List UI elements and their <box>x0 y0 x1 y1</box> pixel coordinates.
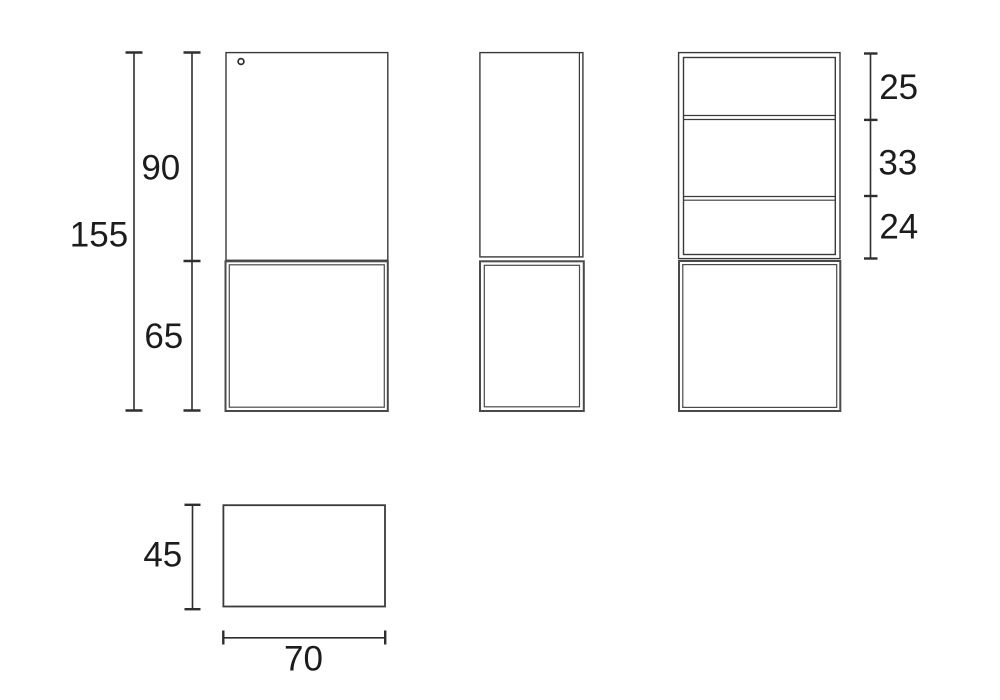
svg-text:25: 25 <box>879 68 918 107</box>
svg-text:70: 70 <box>284 639 323 678</box>
svg-text:33: 33 <box>878 144 917 183</box>
svg-text:24: 24 <box>879 208 918 247</box>
svg-text:65: 65 <box>144 317 183 356</box>
svg-text:155: 155 <box>70 215 128 254</box>
svg-text:90: 90 <box>141 149 180 188</box>
svg-text:45: 45 <box>143 536 182 575</box>
